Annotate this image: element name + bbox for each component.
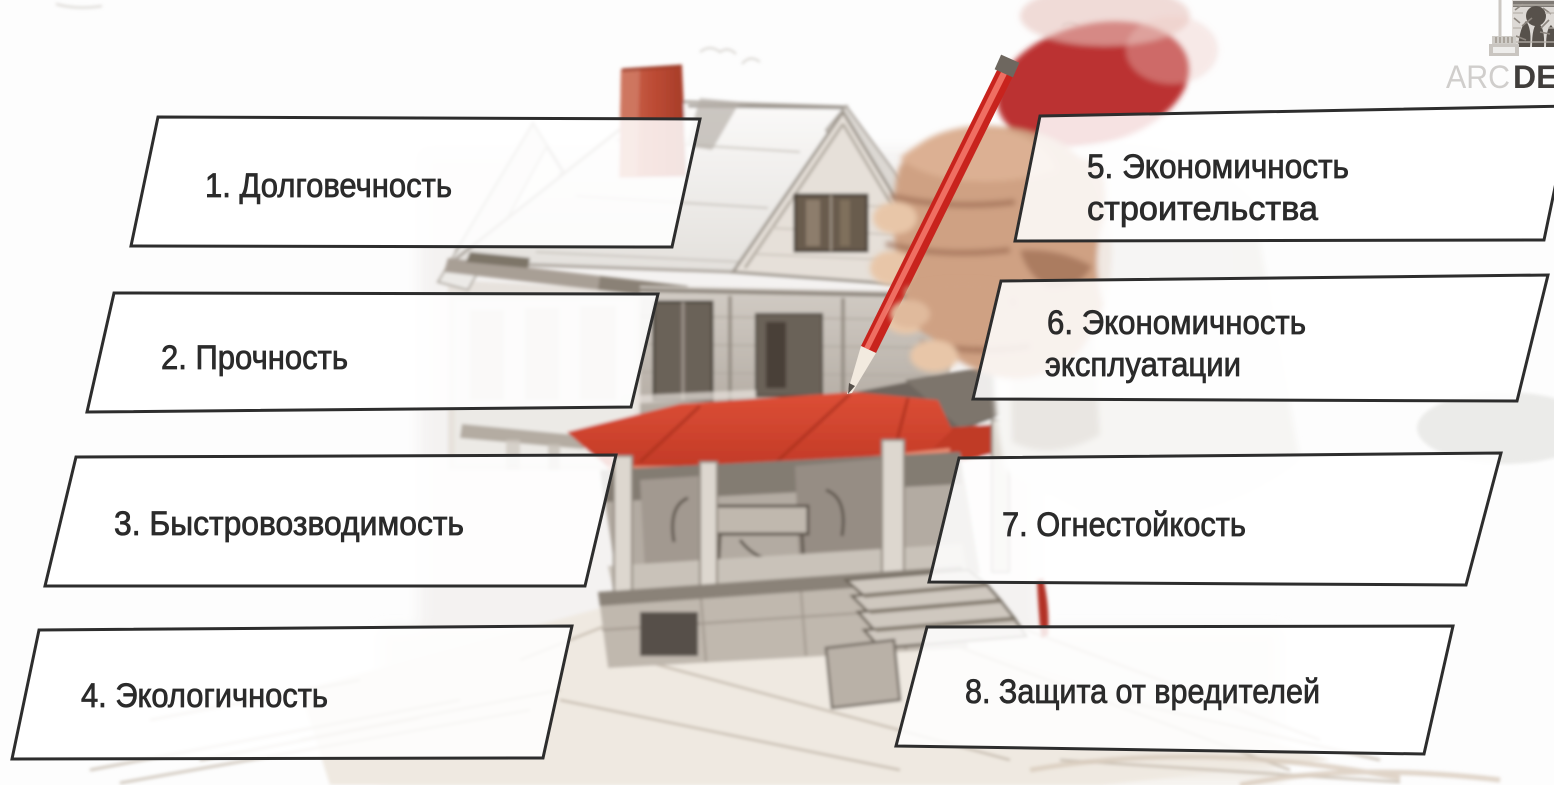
svg-text:4. Экологичность: 4. Экологичность <box>81 677 328 715</box>
svg-text:3. Быстровозводимость: 3. Быстровозводимость <box>114 505 464 543</box>
svg-text:эксплуатации: эксплуатации <box>1045 346 1241 384</box>
svg-text:6. Экономичность: 6. Экономичность <box>1047 304 1306 342</box>
svg-text:2. Прочность: 2. Прочность <box>161 339 348 377</box>
svg-text:8. Защита от вредителей: 8. Защита от вредителей <box>965 673 1320 711</box>
svg-text:ARC: ARC <box>1446 59 1510 95</box>
svg-text:5. Экономичность: 5. Экономичность <box>1087 148 1349 186</box>
svg-text:DE: DE <box>1513 59 1554 95</box>
svg-text:7. Огнестойкость: 7. Огнестойкость <box>1002 506 1246 544</box>
svg-text:1. Долговечность: 1. Долговечность <box>205 167 452 205</box>
svg-text:строительства: строительства <box>1087 190 1318 228</box>
